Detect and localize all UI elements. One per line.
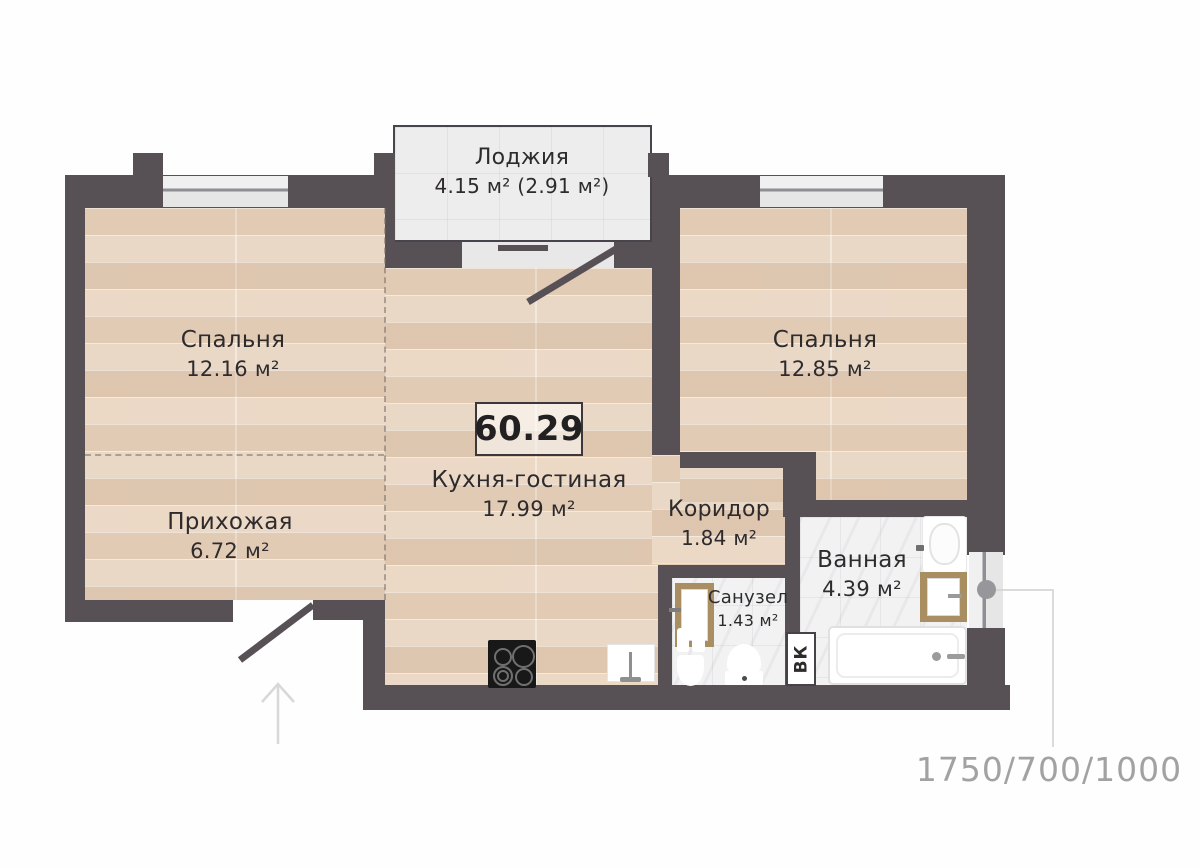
room-label-loggia: Лоджия 4.15 м² (2.91 м²) [434, 146, 609, 197]
room-area: 17.99 м² [431, 498, 626, 522]
room-name: Санузел [708, 588, 788, 608]
dimension-leader-line [996, 590, 1053, 747]
window-dimensions-label: 1750/700/1000 [916, 750, 1182, 789]
entrance-arrow-icon [262, 684, 294, 744]
room-name: Коридор [668, 498, 770, 523]
floor-plan: ВК Лоджия 4.15 м² (2.91 м²) Спальня 12.1… [0, 0, 1200, 868]
total-area-badge: 60.29 [475, 402, 583, 456]
room-label-bedroom-right: Спальня 12.85 м² [773, 328, 877, 381]
room-label-hallway: Прихожая 6.72 м² [167, 510, 293, 563]
room-label-corridor: Коридор 1.84 м² [668, 498, 770, 549]
room-name: Ванная [817, 548, 907, 574]
room-area: 1.84 м² [668, 527, 770, 549]
room-name: Лоджия [434, 146, 609, 171]
room-label-bedroom-left: Спальня 12.16 м² [181, 328, 285, 381]
plan-overlay [0, 0, 1200, 868]
room-name: Спальня [773, 328, 877, 354]
room-area: 12.16 м² [181, 358, 285, 382]
room-area: 4.39 м² [817, 578, 907, 602]
room-label-wc: Санузел 1.43 м² [708, 588, 788, 630]
room-name: Спальня [181, 328, 285, 354]
room-area: 12.85 м² [773, 358, 877, 382]
entrance-door-swing [240, 605, 313, 660]
room-area: 6.72 м² [167, 540, 293, 564]
room-name: Кухня-гостиная [431, 468, 626, 494]
room-area: 1.43 м² [708, 612, 788, 630]
total-area-value: 60.29 [474, 409, 584, 449]
room-name: Прихожая [167, 510, 293, 536]
loggia-door-swing [528, 249, 616, 302]
room-area: 4.15 м² (2.91 м²) [434, 175, 609, 197]
room-label-kitchen-living: Кухня-гостиная 17.99 м² [431, 468, 626, 521]
room-label-bathroom: Ванная 4.39 м² [817, 548, 907, 601]
